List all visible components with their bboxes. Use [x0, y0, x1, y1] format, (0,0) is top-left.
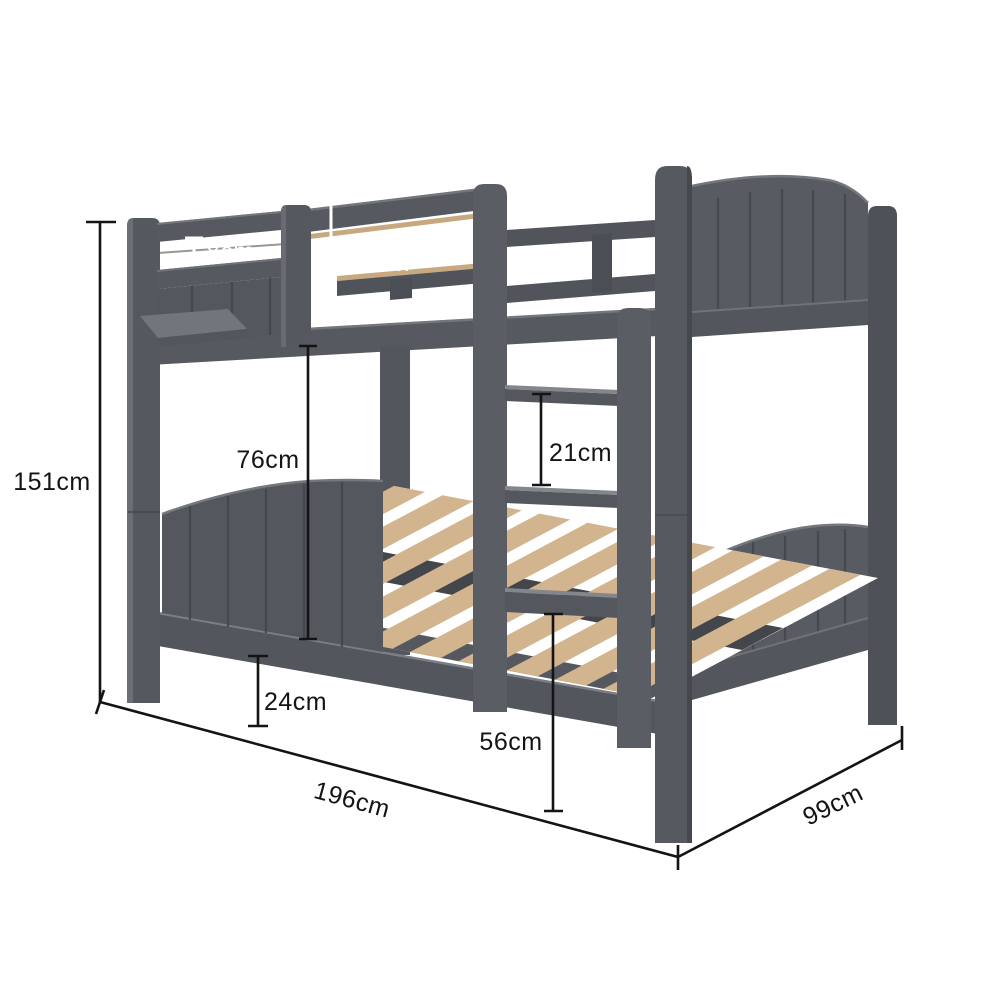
dim-under-bunk-clearance-label: 76cm: [236, 446, 299, 474]
dim-rung-spacing-label: 21cm: [549, 439, 612, 467]
dim-bed-width: 99cm: [678, 726, 902, 857]
dim-under-bed-clearance-label: 24cm: [264, 688, 327, 716]
dim-rung-spacing: 21cm: [532, 394, 612, 485]
headboard-near-post: [655, 166, 692, 843]
dim-rail-gap-label: 8cm: [206, 238, 255, 266]
headboard-far-post: [868, 206, 897, 725]
diagram-canvas: 151cm 196cm 99cm 8cm 37cm 76cm 21cm 24cm…: [0, 0, 1000, 1000]
dim-overall-height: 151cm: [13, 222, 116, 702]
dim-overall-height-label: 151cm: [13, 468, 91, 496]
dim-rail-gap: 8cm: [185, 238, 255, 266]
post-edge-light: [281, 205, 286, 347]
ladder-left-stile: [473, 184, 507, 712]
dim-guardrail-height-label: 37cm: [347, 249, 410, 277]
guardrail-bracket: [390, 278, 412, 300]
dim-bed-width-label: 99cm: [798, 779, 867, 832]
post-edge-light: [127, 218, 133, 703]
bunk-bed-dimension-diagram: 151cm 196cm 99cm 8cm 37cm 76cm 21cm 24cm…: [0, 0, 1000, 1000]
dim-bed-length-label: 196cm: [311, 776, 393, 823]
dim-lower-bunk-height-label: 56cm: [479, 728, 542, 756]
ladder-right-stile: [617, 308, 651, 748]
back-guardrail-lower: [507, 274, 655, 303]
back-guardrail-top: [507, 220, 655, 247]
back-guardrail-post: [592, 233, 612, 293]
post-edge-dark: [687, 166, 692, 843]
